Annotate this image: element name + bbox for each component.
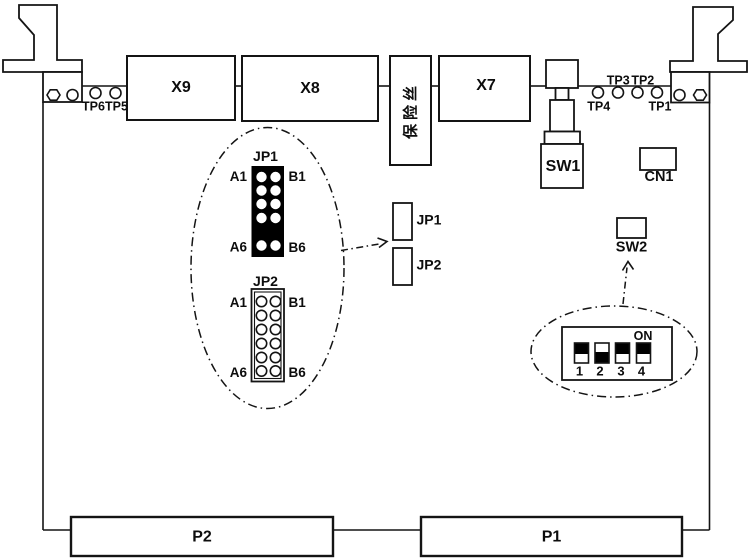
dip-position-1-label: 1 bbox=[576, 364, 583, 379]
pin-hole bbox=[256, 296, 266, 306]
tp2-label: TP2 bbox=[631, 73, 654, 87]
fuse-label: 保险丝 bbox=[402, 82, 420, 140]
pin-hole bbox=[256, 366, 266, 376]
jumper-jp2: JP2 bbox=[393, 248, 442, 285]
dip-callout-arrowhead-icon bbox=[623, 262, 634, 271]
dip-switch-1-actuator bbox=[575, 343, 589, 354]
sw2-body bbox=[617, 218, 646, 238]
pin-hole bbox=[256, 199, 266, 209]
jp2-body bbox=[393, 248, 412, 285]
pin-hole bbox=[270, 366, 280, 376]
sw1-flange bbox=[545, 132, 581, 145]
connector-p2-label: P2 bbox=[192, 529, 212, 546]
tp5-label: TP5 bbox=[105, 100, 128, 114]
connector-p1: P1 bbox=[421, 517, 682, 556]
test-point-tp6 bbox=[90, 88, 101, 99]
pin-hole bbox=[256, 185, 266, 195]
sw1-label: SW1 bbox=[546, 158, 581, 175]
dip-position-2-label: 2 bbox=[596, 364, 603, 379]
screw-hole-icon bbox=[674, 90, 685, 101]
screw-hole-icon bbox=[67, 90, 78, 101]
test-point-tp5 bbox=[110, 88, 121, 99]
pin-hole bbox=[270, 338, 280, 348]
sw1-shaft bbox=[550, 100, 574, 132]
pin-hole bbox=[270, 310, 280, 320]
pin-hole bbox=[256, 172, 266, 182]
sw1-neck bbox=[556, 88, 569, 100]
dip-callout: ON 1 2 3 4 bbox=[531, 262, 697, 398]
jumper-jp1: JP1 bbox=[393, 203, 442, 240]
jp2-pin-b6-label: B6 bbox=[289, 365, 307, 380]
pin-hole bbox=[270, 185, 280, 195]
dip-switch-3-actuator bbox=[616, 343, 630, 354]
jp2-pin-a1-label: A1 bbox=[230, 295, 248, 310]
pin-hole bbox=[270, 324, 280, 334]
jp2-pin-a6-label: A6 bbox=[230, 365, 248, 380]
pin-hole bbox=[270, 213, 280, 223]
sw2-label: SW2 bbox=[616, 240, 647, 256]
pin-hole bbox=[270, 172, 280, 182]
jp-callout-arrowhead-icon bbox=[378, 238, 388, 248]
tp1-label: TP1 bbox=[649, 100, 672, 114]
connector-x8: X8 bbox=[242, 56, 378, 121]
jp2-pin-b1-label: B1 bbox=[289, 295, 307, 310]
switch-sw2: SW2 bbox=[616, 218, 647, 256]
test-points-right: TP3 TP2 TP4 TP1 bbox=[587, 73, 671, 113]
connector-p2: P2 bbox=[71, 517, 333, 556]
test-point-tp1 bbox=[652, 87, 663, 98]
fuse: 保险丝 bbox=[390, 56, 431, 165]
jp1-pin-a1-label: A1 bbox=[230, 169, 248, 184]
board-diagram-page: X9 X8 保险丝 X7 TP6 TP5 TP3 TP2 TP4 TP1 SW1 bbox=[0, 0, 755, 560]
jp1-pin-b6-label: B6 bbox=[289, 240, 307, 255]
tp3-label: TP3 bbox=[607, 73, 630, 87]
pin-hole bbox=[256, 352, 266, 362]
jp-callout-arrow bbox=[341, 244, 379, 251]
connector-x8-label: X8 bbox=[300, 80, 320, 97]
dip-switch-2-actuator bbox=[595, 352, 609, 363]
connector-x9-label: X9 bbox=[171, 79, 191, 96]
pin-hole bbox=[256, 324, 266, 334]
ejector-handle-right-icon bbox=[670, 7, 747, 72]
jp1-pin-b1-label: B1 bbox=[289, 169, 307, 184]
jp1-detail-title: JP1 bbox=[253, 148, 278, 164]
pin-hole bbox=[256, 213, 266, 223]
switch-sw1: SW1 bbox=[541, 60, 583, 188]
jp1-body bbox=[393, 203, 412, 240]
sw1-top-cap bbox=[546, 60, 578, 88]
test-point-tp3 bbox=[613, 87, 624, 98]
cn1-label: CN1 bbox=[644, 169, 673, 185]
jp1-label: JP1 bbox=[417, 212, 442, 228]
jp2-label: JP2 bbox=[417, 257, 442, 273]
dip-position-3-label: 3 bbox=[617, 364, 624, 379]
board-diagram: X9 X8 保险丝 X7 TP6 TP5 TP3 TP2 TP4 TP1 SW1 bbox=[0, 0, 755, 560]
pin-hole bbox=[270, 240, 280, 250]
ejector-handle-left-icon bbox=[3, 5, 82, 72]
pin-hole bbox=[256, 310, 266, 320]
tp6-label: TP6 bbox=[82, 100, 105, 114]
pin-hole bbox=[256, 240, 266, 250]
connector-p1-label: P1 bbox=[542, 529, 562, 546]
test-point-tp2 bbox=[632, 87, 643, 98]
connector-x7: X7 bbox=[439, 56, 530, 121]
tp4-label: TP4 bbox=[587, 100, 610, 114]
connector-x9: X9 bbox=[127, 56, 235, 120]
dip-position-4-label: 4 bbox=[638, 364, 646, 379]
dip-callout-arrow bbox=[623, 268, 627, 305]
connector-cn1: CN1 bbox=[640, 148, 676, 185]
test-points-left: TP6 TP5 bbox=[82, 88, 128, 114]
jp1-pin-a6-label: A6 bbox=[230, 240, 248, 255]
jp-callout: JP1 A1 B1 A6 B6 JP2 A1 B1 A6 B6 bbox=[191, 128, 387, 409]
dip-on-label: ON bbox=[634, 329, 653, 343]
dip-switch-4-actuator bbox=[637, 343, 651, 354]
pin-hole bbox=[270, 296, 280, 306]
connector-x7-label: X7 bbox=[476, 77, 496, 94]
pin-hole bbox=[270, 199, 280, 209]
jp2-detail-title: JP2 bbox=[253, 273, 278, 289]
hex-nut-icon bbox=[47, 90, 60, 100]
pin-hole bbox=[270, 352, 280, 362]
hex-nut-icon bbox=[694, 90, 707, 100]
test-point-tp4 bbox=[593, 87, 604, 98]
cn1-body bbox=[640, 148, 676, 170]
pin-hole bbox=[256, 338, 266, 348]
